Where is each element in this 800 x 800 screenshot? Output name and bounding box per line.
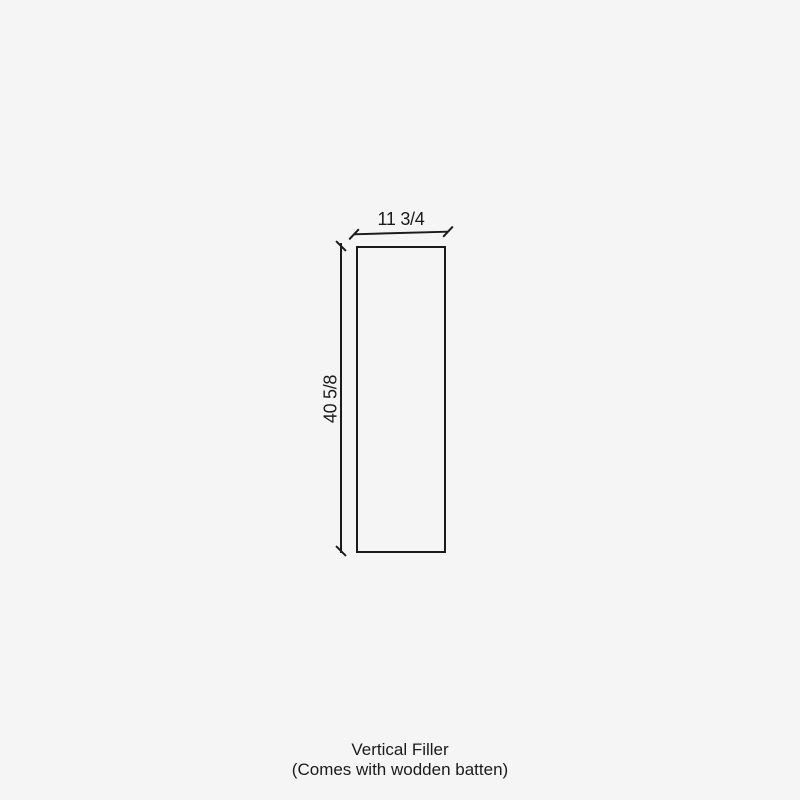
diagram-canvas: 11 3/4 40 5/8 Vertical Filler (Comes wit… [0,0,800,800]
caption: Vertical Filler (Comes with wodden batte… [0,740,800,780]
caption-subtitle: (Comes with wodden batten) [0,760,800,780]
width-dimension-line [354,231,448,235]
filler-panel-outline [356,246,446,553]
height-dimension-label: 40 5/8 [321,375,342,423]
caption-title: Vertical Filler [0,740,800,760]
width-dimension [354,225,448,242]
